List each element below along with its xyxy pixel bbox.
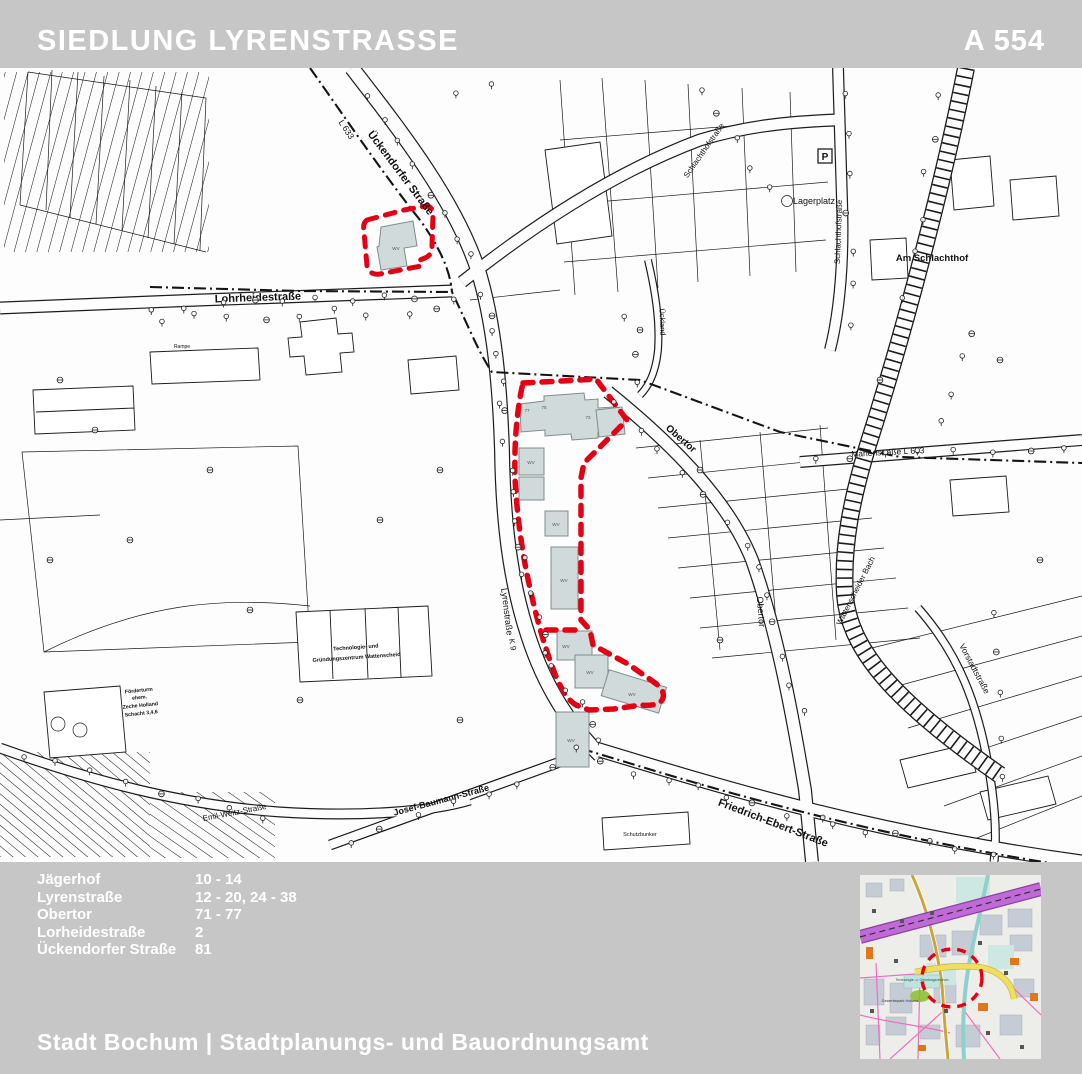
svg-text:77: 77 bbox=[524, 408, 530, 413]
svg-text:73: 73 bbox=[585, 415, 591, 420]
address-row: Jägerhof 10 - 14 bbox=[37, 871, 297, 889]
address-row: Ückendorfer Straße 81 bbox=[37, 941, 297, 959]
plan-code: A 554 bbox=[964, 25, 1045, 58]
address-street: Obertor bbox=[37, 906, 195, 924]
site-map: 77 75 73 WV WV WV WV WV WV WV WV Ückendo… bbox=[0, 68, 1082, 862]
page-title: SIEDLUNG LYRENSTRASSE bbox=[37, 25, 459, 58]
svg-text:WV: WV bbox=[560, 578, 568, 583]
svg-text:WV: WV bbox=[392, 246, 400, 251]
svg-text:75: 75 bbox=[541, 405, 547, 410]
minimap-label-tz: Technologie- u. Gründungszentrum bbox=[896, 978, 949, 982]
footer-title: Stadt Bochum | Stadtplanungs- und Bauord… bbox=[37, 1029, 649, 1056]
plan-sheet: SIEDLUNG LYRENSTRASSE A 554 bbox=[0, 0, 1082, 1074]
minimap-label-gewerbepark: Gewerbepark Holland bbox=[882, 999, 919, 1003]
address-row: Lyrenstraße 12 - 20, 24 - 38 bbox=[37, 889, 297, 907]
address-street: Lyrenstraße bbox=[37, 889, 195, 907]
address-street: Jägerhof bbox=[37, 871, 195, 889]
svg-text:P: P bbox=[822, 152, 829, 163]
street-label-ueckland: Ückland bbox=[658, 308, 668, 335]
overview-map: Technologie- u. Gründungszentrum Gewerbe… bbox=[860, 875, 1041, 1064]
label-lagerplatz: Lagerplatz bbox=[793, 196, 836, 206]
address-row: Obertor 71 - 77 bbox=[37, 906, 297, 924]
address-numbers: 81 bbox=[195, 941, 297, 959]
svg-text:WV: WV bbox=[628, 692, 636, 697]
address-row: Lorheidestraße 2 bbox=[37, 924, 297, 942]
address-numbers: 2 bbox=[195, 924, 297, 942]
address-numbers: 71 - 77 bbox=[195, 906, 297, 924]
street-label-obertor-lower: Obertor bbox=[755, 596, 767, 627]
svg-text:WV: WV bbox=[567, 738, 575, 743]
address-numbers: 10 - 14 bbox=[195, 871, 297, 889]
address-street: Lorheidestraße bbox=[37, 924, 195, 942]
svg-text:WV: WV bbox=[562, 644, 570, 649]
svg-text:WV: WV bbox=[586, 670, 594, 675]
svg-text:WV: WV bbox=[552, 522, 560, 527]
svg-text:WV: WV bbox=[527, 460, 535, 465]
address-list: Jägerhof 10 - 14 Lyrenstraße 12 - 20, 24… bbox=[37, 871, 297, 959]
address-street: Ückendorfer Straße bbox=[37, 941, 195, 959]
label-rampe: Rampe bbox=[174, 344, 190, 350]
address-numbers: 12 - 20, 24 - 38 bbox=[195, 889, 297, 907]
label-schutzbunker: Schutzbunker bbox=[623, 832, 657, 838]
label-am-schlachthof: Am Schlachthof bbox=[896, 253, 969, 264]
